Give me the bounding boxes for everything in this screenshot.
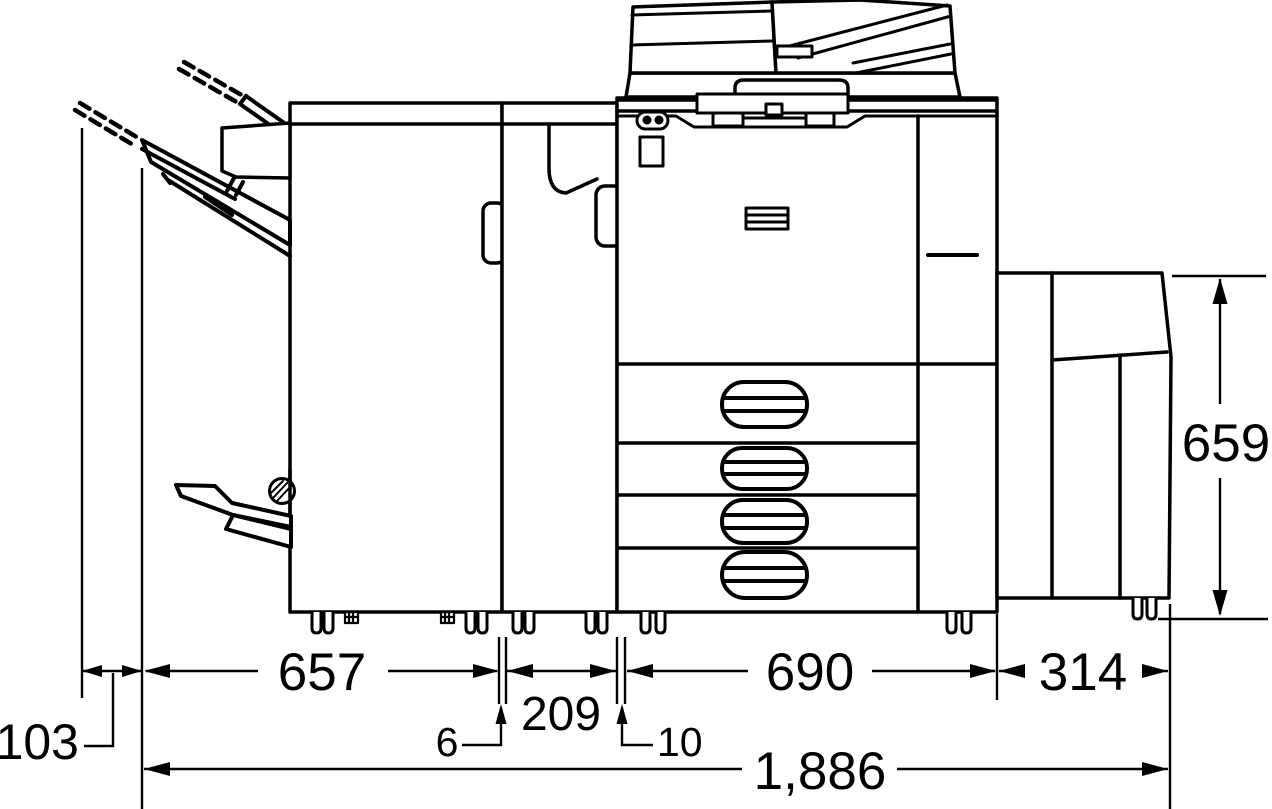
printer-line-drawing: 103 657 6 209 10 690 314 1,886 659 bbox=[0, 0, 1272, 809]
drawer-handle bbox=[722, 448, 807, 489]
machine-units bbox=[75, 0, 1171, 633]
foot bbox=[962, 612, 971, 633]
dim-label-659: 659 bbox=[1182, 414, 1270, 473]
square-foot bbox=[441, 612, 454, 623]
adf-step bbox=[777, 46, 812, 57]
bridge-body bbox=[502, 103, 617, 612]
lower-tray-extension-dashed bbox=[75, 103, 140, 146]
upper-tray-extension-dashed bbox=[179, 62, 245, 104]
drawer-handle bbox=[722, 500, 807, 543]
bridge-unit bbox=[502, 103, 623, 612]
dim-label-10: 10 bbox=[657, 719, 703, 765]
foot bbox=[478, 612, 487, 633]
dim-label-103: 103 bbox=[0, 714, 79, 770]
foot bbox=[1147, 598, 1156, 619]
drawer-handle bbox=[722, 552, 807, 598]
dim-label-1886: 1,886 bbox=[754, 742, 887, 801]
lct-body bbox=[997, 273, 1171, 598]
badge-plate bbox=[640, 137, 663, 166]
lct-unit bbox=[997, 273, 1171, 598]
foot bbox=[525, 612, 534, 633]
band-slot bbox=[713, 113, 743, 126]
foot bbox=[586, 612, 595, 633]
dimension-diagram: 103 657 6 209 10 690 314 1,886 659 bbox=[0, 0, 1272, 809]
exit-tray bbox=[176, 470, 295, 547]
finisher-body bbox=[290, 103, 502, 612]
exit-roller bbox=[270, 470, 295, 515]
leader-10 bbox=[622, 708, 653, 745]
leader-103 bbox=[84, 673, 113, 746]
front-vent bbox=[746, 208, 788, 229]
foot bbox=[466, 612, 475, 633]
foot bbox=[641, 612, 650, 633]
band-slot bbox=[806, 113, 834, 126]
foot bbox=[656, 612, 665, 633]
foot bbox=[947, 612, 956, 633]
finisher-unit bbox=[290, 103, 505, 612]
tray-bracket bbox=[222, 123, 290, 178]
panel-center-button bbox=[766, 104, 782, 115]
drawer-handle bbox=[722, 382, 807, 427]
dim-label-657: 657 bbox=[278, 643, 366, 702]
dim-label-314: 314 bbox=[1039, 643, 1127, 702]
foot bbox=[312, 612, 321, 633]
main-unit bbox=[617, 98, 997, 612]
main-body bbox=[617, 98, 997, 612]
dim-label-690: 690 bbox=[766, 643, 854, 702]
leader-6 bbox=[462, 708, 501, 745]
foot bbox=[598, 612, 607, 633]
square-foot bbox=[345, 612, 358, 623]
output-trays bbox=[75, 62, 290, 256]
hinge-knobs bbox=[637, 112, 668, 129]
dim-label-209: 209 bbox=[521, 688, 601, 741]
foot bbox=[1133, 598, 1142, 619]
foot bbox=[324, 612, 333, 633]
foot bbox=[513, 612, 522, 633]
dim-label-6: 6 bbox=[436, 719, 459, 765]
